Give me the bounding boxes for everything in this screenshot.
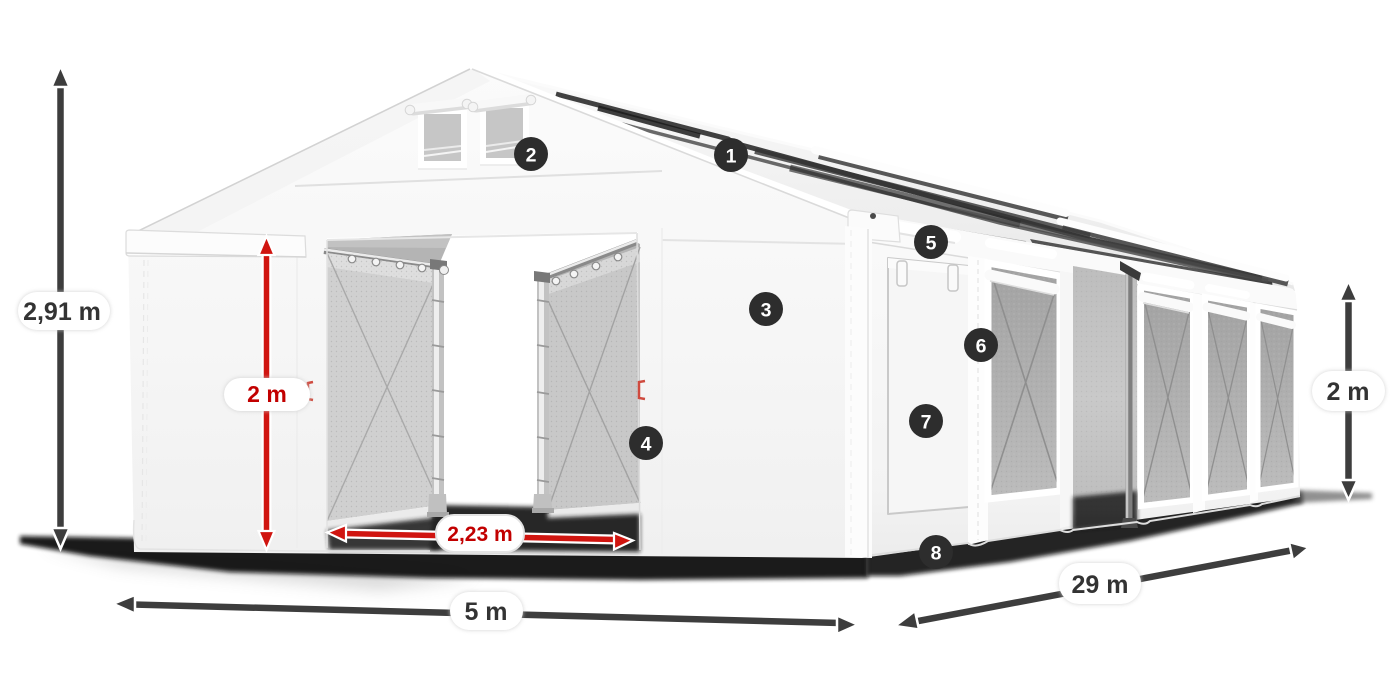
svg-text:4: 4 bbox=[641, 434, 652, 456]
svg-text:6: 6 bbox=[976, 336, 987, 358]
svg-text:8: 8 bbox=[931, 543, 942, 565]
svg-text:2 m: 2 m bbox=[247, 381, 287, 407]
svg-text:2: 2 bbox=[526, 145, 537, 167]
svg-text:7: 7 bbox=[921, 412, 932, 434]
svg-text:2 m: 2 m bbox=[1326, 378, 1369, 406]
svg-text:5: 5 bbox=[926, 233, 937, 255]
svg-text:3: 3 bbox=[761, 300, 772, 322]
svg-text:5 m: 5 m bbox=[464, 598, 507, 626]
svg-text:2,23 m: 2,23 m bbox=[447, 523, 512, 546]
svg-text:1: 1 bbox=[726, 146, 737, 168]
svg-text:29 m: 29 m bbox=[1072, 571, 1129, 599]
svg-text:2,91 m: 2,91 m bbox=[23, 298, 101, 326]
